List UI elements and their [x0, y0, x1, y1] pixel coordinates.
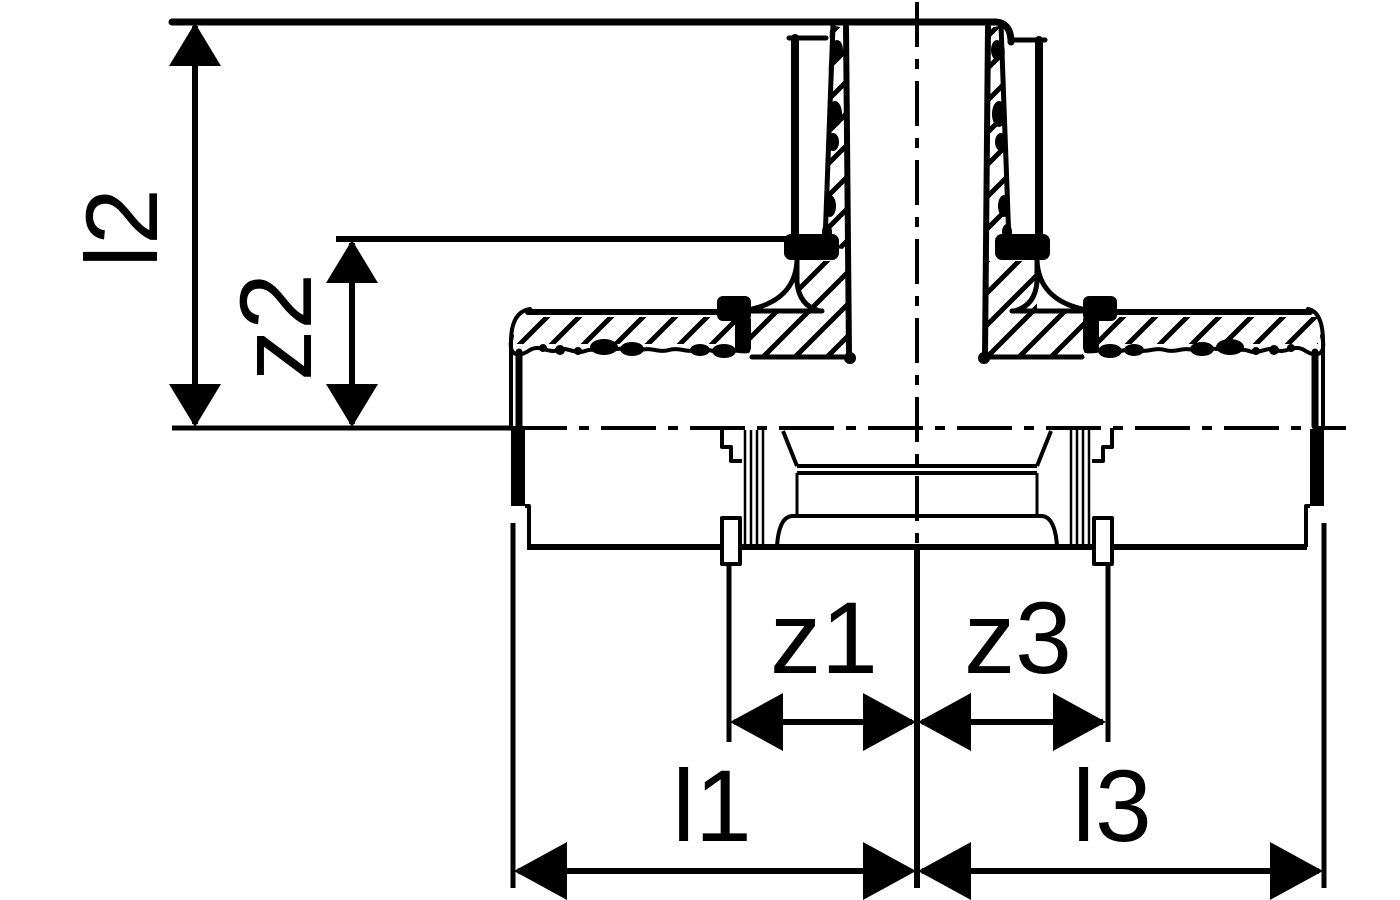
dim-z1 [730, 693, 916, 751]
dimension-label-l3: l3 [1072, 755, 1151, 857]
z1-shoulder [722, 428, 742, 461]
dimension-label-z3: z3 [964, 587, 1072, 689]
z3-depth-tab [1094, 518, 1112, 564]
left-arm-sleeve-hatch [516, 317, 742, 344]
dim-z3 [918, 693, 1106, 751]
z3-shoulder [1092, 428, 1112, 461]
technical-drawing-canvas: l2 z2 z1 z3 l1 l3 [0, 0, 1400, 900]
branch-right-bore-line [985, 27, 988, 355]
dimension-label-z2: z2 [225, 273, 327, 381]
fitting-upper-body [172, 22, 1323, 426]
dim-z2 [326, 240, 378, 427]
dimension-label-z1: z1 [770, 587, 878, 689]
branch-left-bore-line [846, 27, 849, 355]
right-arm-sleeve-hatch [1092, 317, 1318, 344]
dimension-label-l2: l2 [71, 188, 173, 267]
centerlines [172, 2, 1346, 888]
top-edge-line [172, 22, 1011, 42]
dimension-label-l1: l1 [672, 755, 751, 857]
branch-right-collar [995, 234, 1050, 260]
branch-left-collar [784, 234, 839, 260]
z1-depth-tab [722, 518, 740, 564]
